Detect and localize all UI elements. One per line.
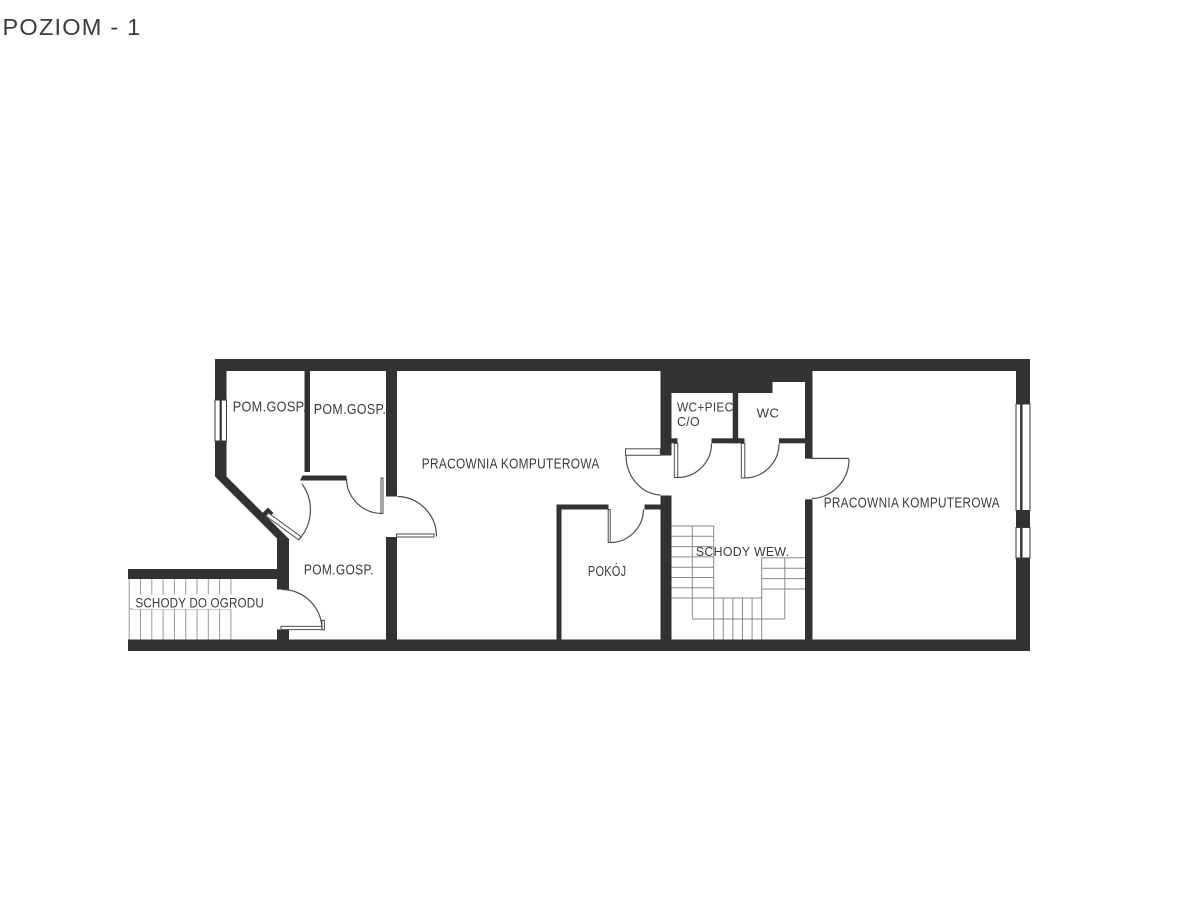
svg-text:WC: WC [757, 407, 780, 421]
svg-text:POZIOM - 1: POZIOM - 1 [3, 14, 142, 40]
svg-text:PRACOWNIA KOMPUTEROWA: PRACOWNIA KOMPUTEROWA [422, 456, 600, 472]
svg-text:SCHODY DO OGRODU: SCHODY DO OGRODU [135, 595, 264, 611]
svg-text:WC+PIEC: WC+PIEC [677, 400, 734, 414]
svg-text:POKÓJ: POKÓJ [588, 563, 627, 580]
svg-text:POM.GOSP.: POM.GOSP. [233, 400, 307, 416]
svg-text:C/O: C/O [677, 415, 700, 429]
svg-text:POM.GOSP.: POM.GOSP. [304, 562, 374, 578]
svg-text:SCHODY WEW.: SCHODY WEW. [696, 545, 790, 559]
svg-text:POM.GOSP.: POM.GOSP. [314, 402, 387, 418]
svg-text:PRACOWNIA KOMPUTEROWA: PRACOWNIA KOMPUTEROWA [824, 496, 1000, 512]
